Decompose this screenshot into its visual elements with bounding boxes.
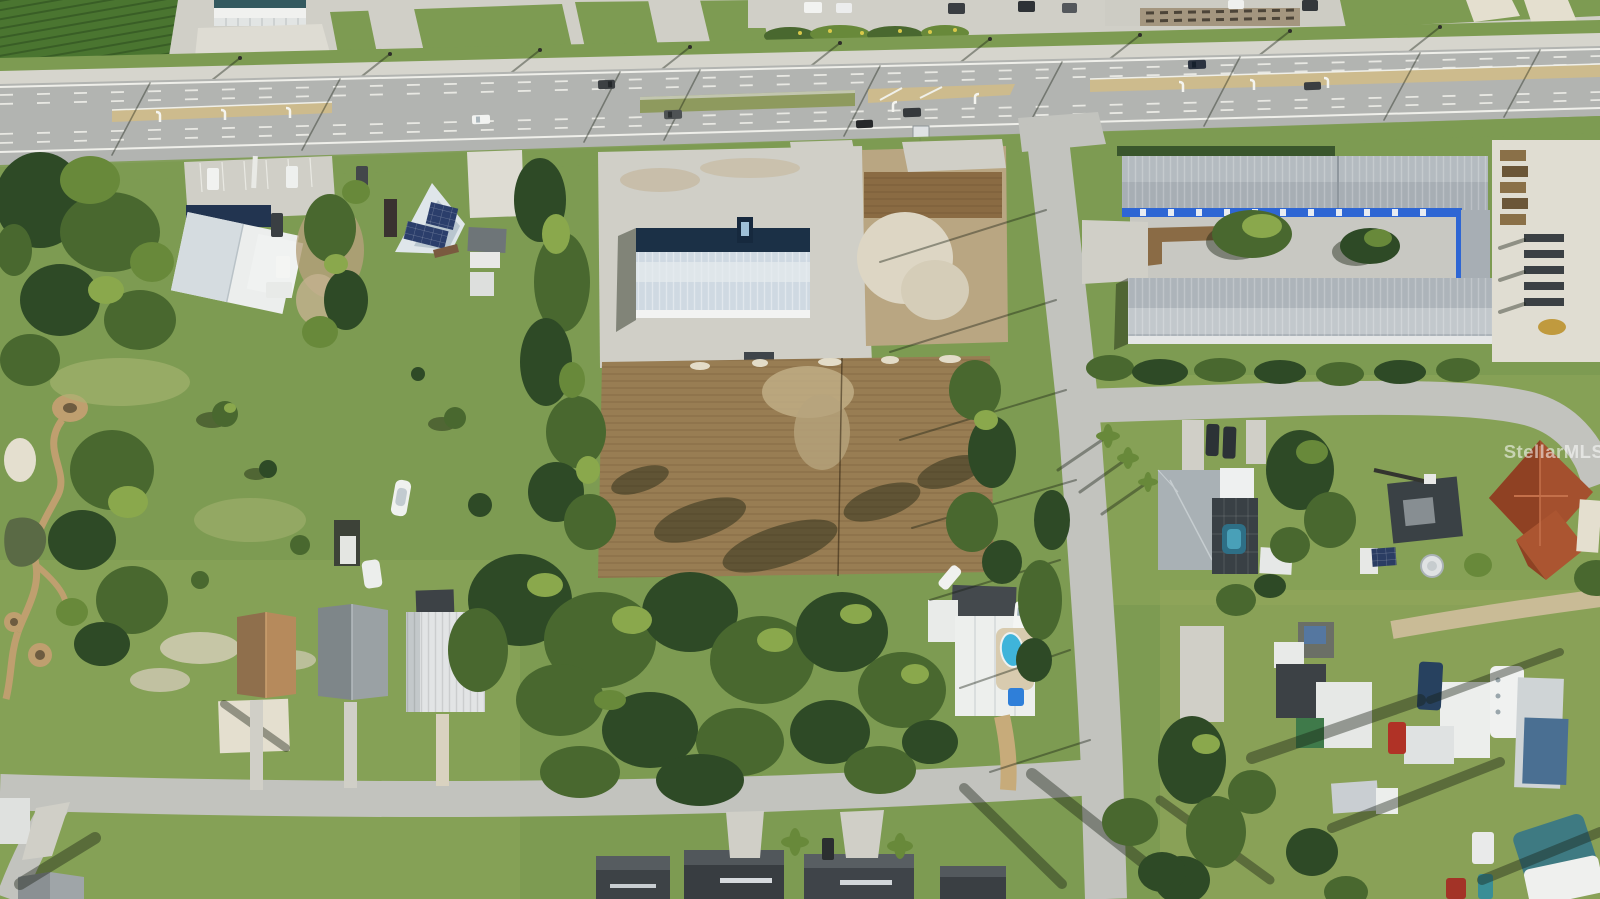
driveway [436,714,449,786]
dark-roof-house [804,854,914,899]
materials-yard [1492,140,1600,362]
dark-roof-house [940,866,1006,899]
dark-roof-house [596,856,670,899]
storage-yard-top [1105,0,1340,26]
lower-building [1114,278,1498,350]
mls-watermark: StellarMLS [1504,441,1600,462]
driveway [840,810,884,858]
gray-roof-house [318,604,388,700]
aerial-photo: StellarMLS [0,0,1600,899]
parked-car [822,838,834,860]
sand-patch [4,438,36,482]
sand-driveway [1002,716,1009,790]
lanai-roof [1220,468,1254,502]
driveway-apron [648,0,710,46]
mobile-home [1514,677,1570,789]
driveway [250,700,263,790]
blue-spa [1008,688,1024,706]
courtyard [1130,217,1460,279]
warehouse-building [616,217,810,332]
dark-trailer [384,199,397,237]
pool-screen-enclosure [1212,498,1258,574]
driveway [1182,420,1204,478]
concrete-pad [1180,626,1224,722]
driveway [344,702,357,788]
dirt-frontage [857,139,1008,346]
entry-apron [1082,220,1148,284]
north-hedge [1117,146,1335,156]
driveway [726,811,764,858]
driveway [1576,499,1600,552]
houses-row-left [218,589,485,790]
parking-row-top [748,0,1110,28]
sand-pile [1538,319,1566,335]
